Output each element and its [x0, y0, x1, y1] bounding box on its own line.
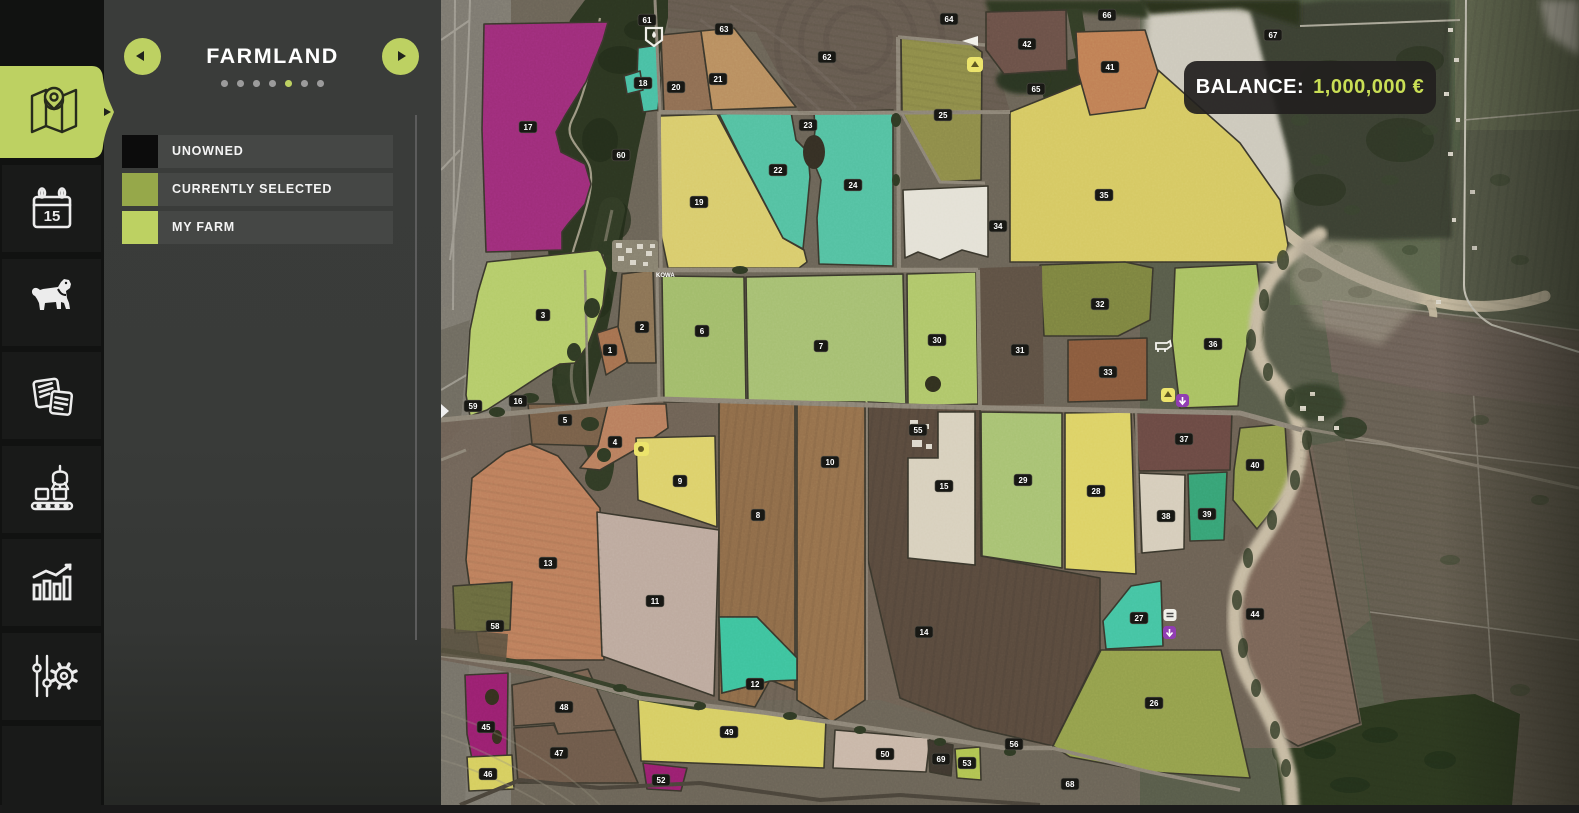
svg-text:15: 15 [43, 208, 60, 225]
